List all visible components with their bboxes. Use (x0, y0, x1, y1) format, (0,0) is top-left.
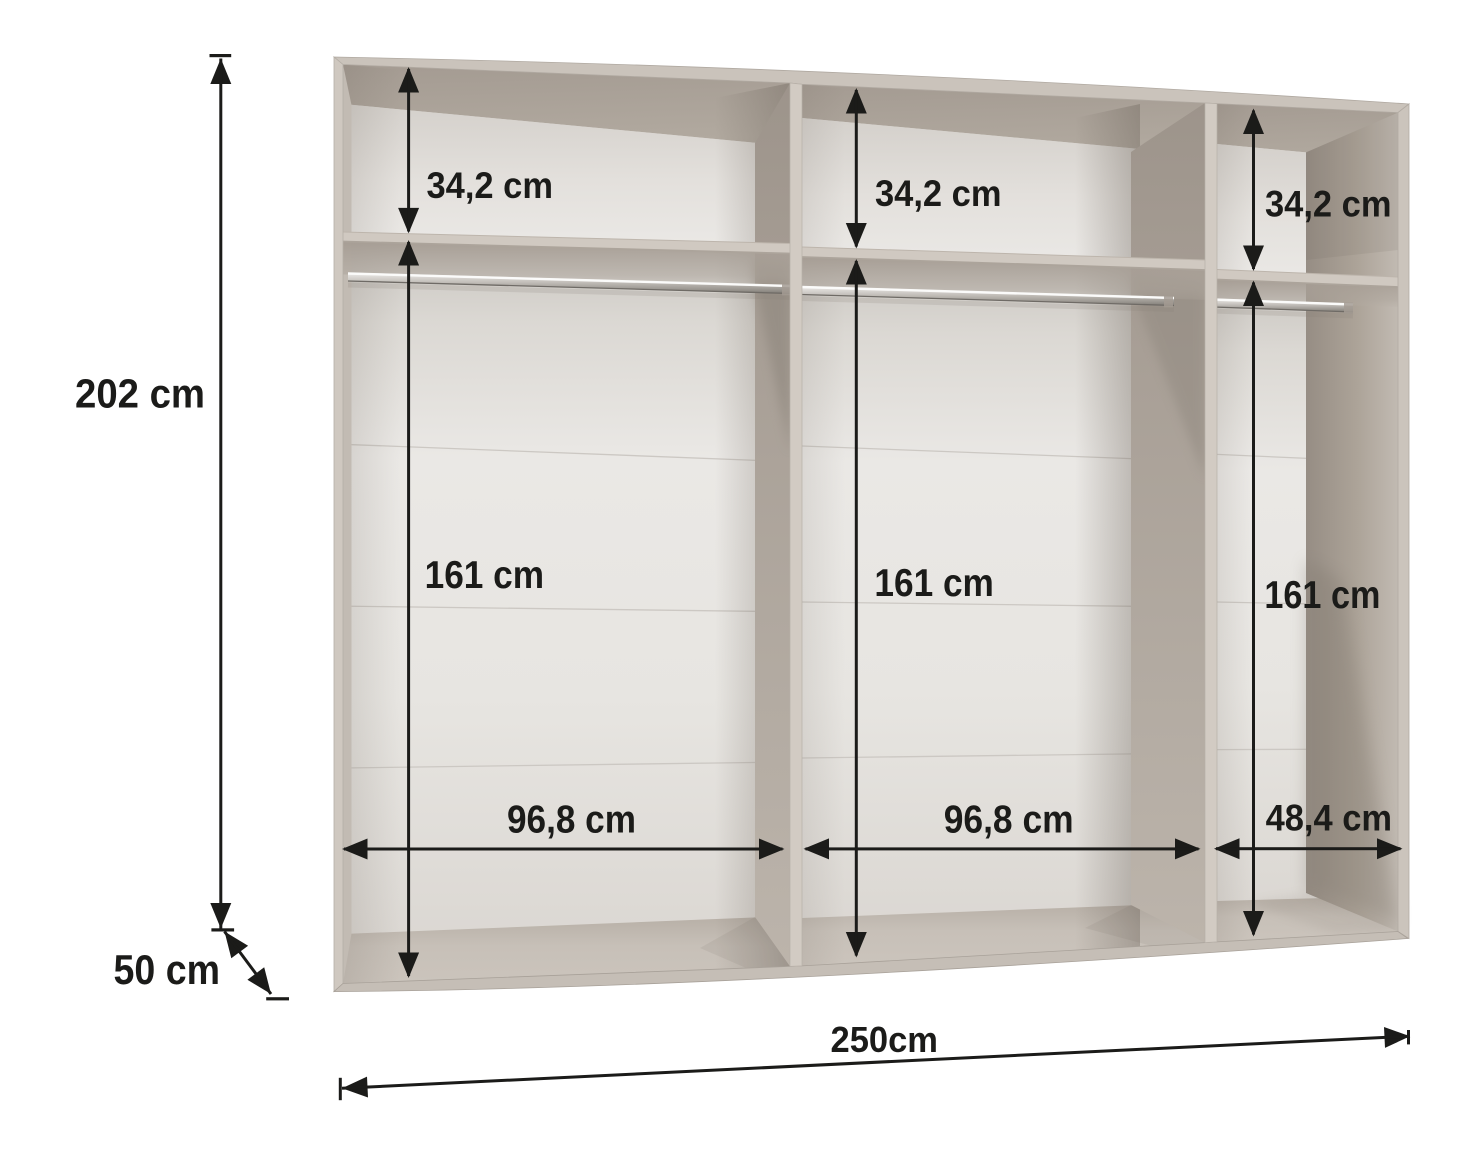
svg-text:96,8 cm: 96,8 cm (507, 799, 636, 842)
svg-text:50 cm: 50 cm (114, 946, 221, 993)
svg-text:161 cm: 161 cm (425, 554, 544, 597)
svg-text:34,2 cm: 34,2 cm (875, 173, 1002, 214)
svg-text:34,2 cm: 34,2 cm (1265, 184, 1392, 225)
svg-text:202 cm: 202 cm (75, 371, 205, 417)
svg-text:161 cm: 161 cm (1264, 574, 1380, 617)
svg-text:161 cm: 161 cm (874, 562, 994, 605)
svg-text:250cm: 250cm (831, 1019, 939, 1060)
svg-text:96,8 cm: 96,8 cm (944, 799, 1074, 842)
svg-text:34,2 cm: 34,2 cm (427, 165, 554, 206)
svg-text:48,4 cm: 48,4 cm (1266, 798, 1393, 839)
